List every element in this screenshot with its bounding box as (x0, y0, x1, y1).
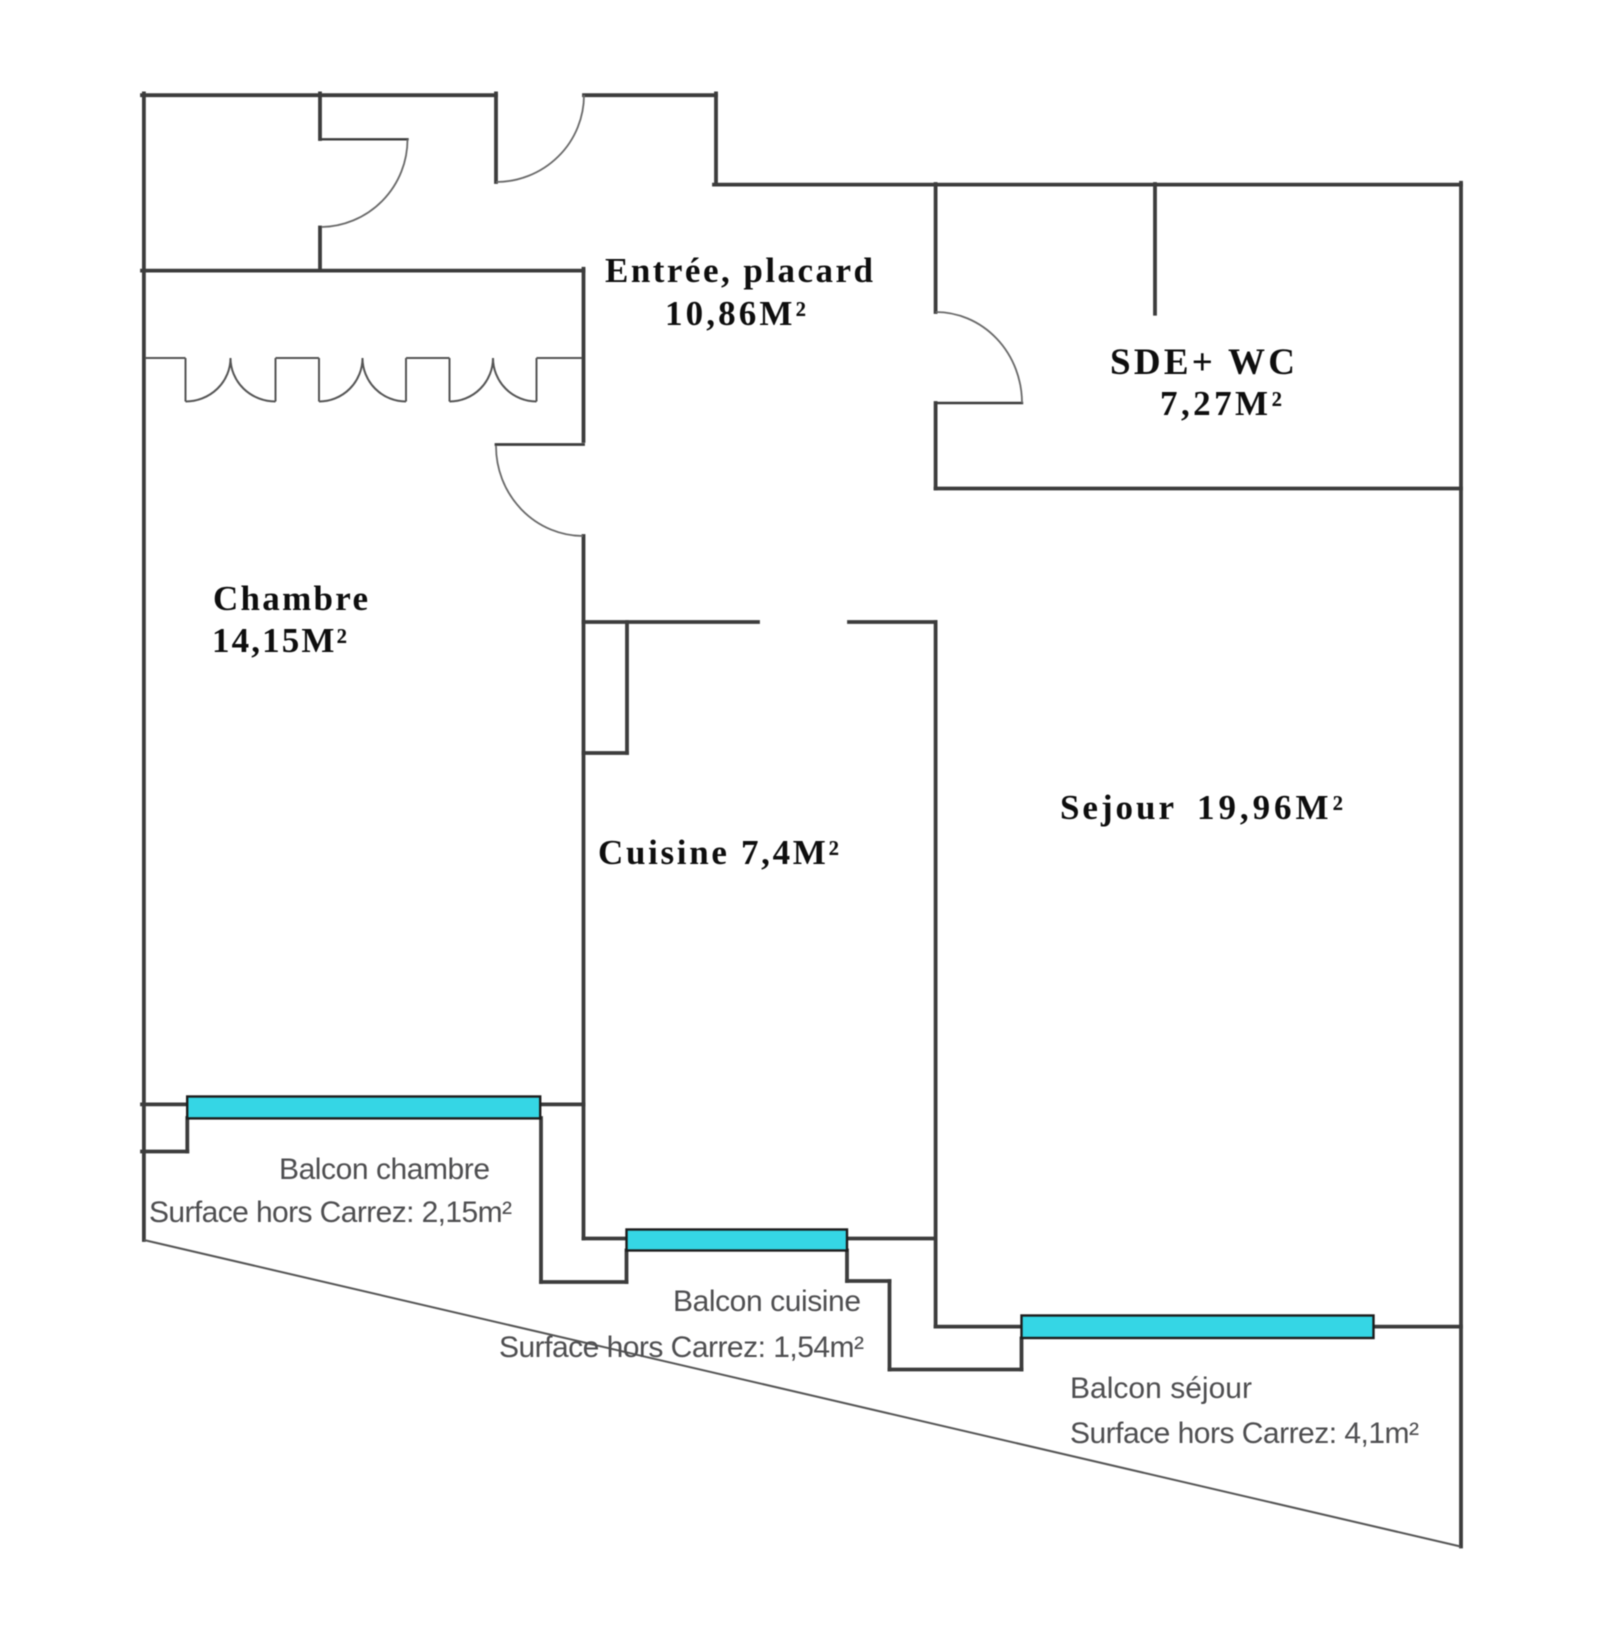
svg-text:Cuisine 7,4M²: Cuisine 7,4M² (598, 833, 839, 872)
svg-text:Entrée, placard: Entrée, placard (605, 251, 874, 290)
svg-text:10,86M²: 10,86M² (665, 294, 806, 333)
svg-text:SDE+ WC: SDE+ WC (1110, 342, 1295, 383)
svg-text:Balcon cuisine: Balcon cuisine (673, 1285, 861, 1318)
svg-text:14,15M²: 14,15M² (212, 621, 347, 660)
svg-text:Surface hors Carrez: 4,1m²: Surface hors Carrez: 4,1m² (1070, 1417, 1419, 1450)
svg-text:Balcon chambre: Balcon chambre (279, 1153, 490, 1186)
svg-text:Surface hors Carrez: 1,54m²: Surface hors Carrez: 1,54m² (499, 1331, 864, 1364)
svg-text:Surface hors Carrez: 2,15m²: Surface hors Carrez: 2,15m² (149, 1196, 512, 1229)
svg-text:19,96M²: 19,96M² (1197, 788, 1343, 827)
svg-text:Chambre: Chambre (213, 579, 368, 618)
svg-text:7,27M²: 7,27M² (1160, 384, 1282, 423)
svg-text:Balcon séjour: Balcon séjour (1070, 1372, 1252, 1405)
svg-text:Sejour: Sejour (1060, 788, 1174, 827)
